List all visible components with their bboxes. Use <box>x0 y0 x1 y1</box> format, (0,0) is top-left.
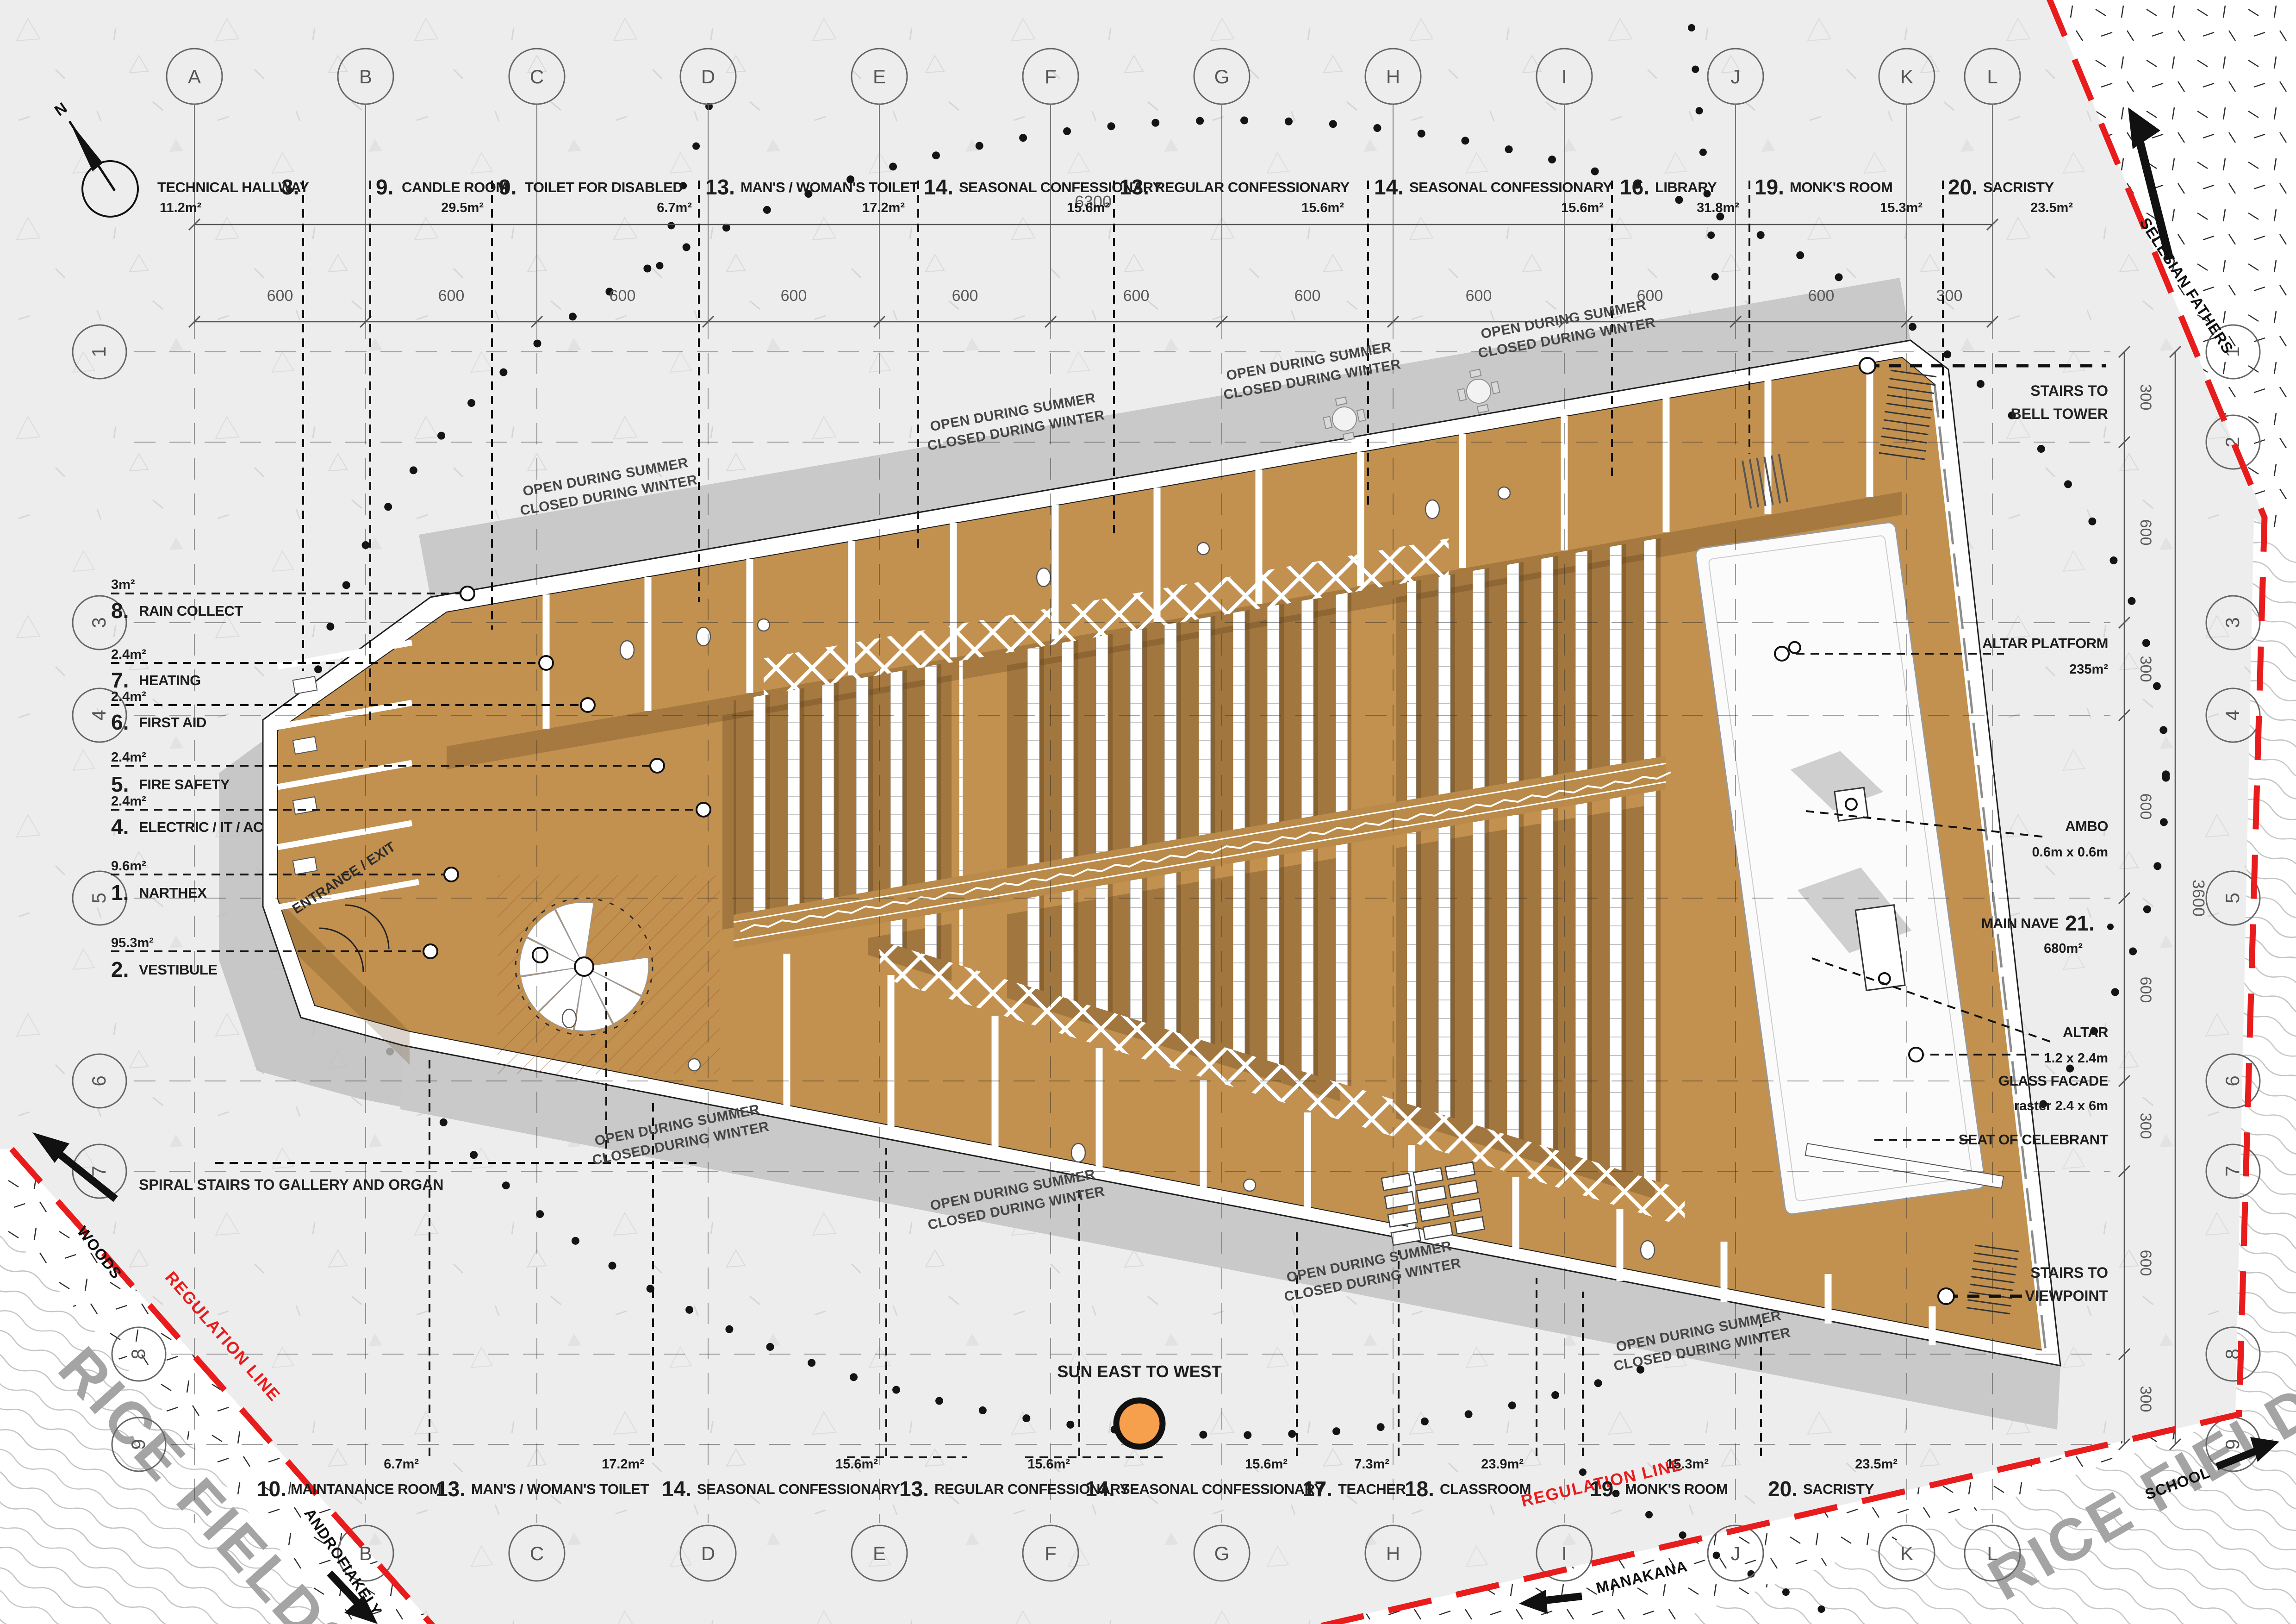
grid-col: C <box>530 66 544 87</box>
sun-icon <box>1116 1400 1163 1447</box>
svg-text:7.3m²: 7.3m² <box>1354 1457 1389 1472</box>
dim-seg: 600 <box>2137 793 2154 820</box>
main-nave-label: MAIN NAVE <box>1981 915 2059 931</box>
grid-col: F <box>1045 66 1057 87</box>
svg-text:18.: 18. <box>1405 1477 1434 1501</box>
grid-row: 4 <box>88 710 110 720</box>
main-nave-num: 21. <box>2065 911 2095 935</box>
grid-col: E <box>873 66 886 87</box>
dim-seg: 300 <box>2137 1113 2154 1139</box>
seat-of-celebrant-label: SEAT OF CELEBRANT <box>1959 1131 2109 1148</box>
spiral-stairs-note: SPIRAL STAIRS TO GALLERY AND ORGAN <box>139 1176 443 1193</box>
svg-text:15.3m²: 15.3m² <box>1880 200 1923 215</box>
glass-facade-size: raster 2.4 x 6m <box>2014 1099 2108 1113</box>
svg-text:FIRE SAFETY: FIRE SAFETY <box>139 776 230 793</box>
grid-row: 5 <box>2221 893 2243 903</box>
svg-text:15.6m²: 15.6m² <box>1067 200 1109 215</box>
svg-text:MONK'S ROOM: MONK'S ROOM <box>1625 1481 1728 1497</box>
svg-text:NARTHEX: NARTHEX <box>139 885 207 901</box>
dim-seg: 600 <box>1294 287 1321 305</box>
svg-text:31.8m²: 31.8m² <box>1697 200 1739 215</box>
viewpoint-label: STAIRS TO <box>2030 1264 2108 1281</box>
svg-text:2.4m²: 2.4m² <box>111 647 146 662</box>
plan-canvas: RICE FIELDS RICE FIELDS <box>0 0 2296 1624</box>
svg-text:6.: 6. <box>111 710 129 734</box>
svg-text:REGULAR CONFESSIONARY: REGULAR CONFESSIONARY <box>1155 179 1350 195</box>
svg-text:SEASONAL CONFESSIONARY: SEASONAL CONFESSIONARY <box>1120 1481 1324 1497</box>
svg-text:15.3m²: 15.3m² <box>1666 1457 1709 1472</box>
svg-text:14.: 14. <box>1085 1477 1115 1501</box>
ambo-size: 0.6m x 0.6m <box>2032 845 2108 860</box>
svg-text:RAIN COLLECT: RAIN COLLECT <box>139 603 243 619</box>
dim-seg: 600 <box>2137 977 2154 1003</box>
svg-text:1.: 1. <box>111 881 129 905</box>
svg-text:SEASONAL CONFESSIONARY: SEASONAL CONFESSIONARY <box>697 1481 900 1497</box>
svg-text:8.: 8. <box>111 599 129 623</box>
glass-facade-label: GLASS FACADE <box>1998 1073 2108 1089</box>
svg-text:4.: 4. <box>111 815 129 839</box>
grid-col: L <box>1987 1543 1997 1564</box>
svg-text:2.4m²: 2.4m² <box>111 794 146 809</box>
svg-text:13.: 13. <box>705 175 735 199</box>
svg-text:CANDLE ROOM: CANDLE ROOM <box>402 179 508 195</box>
svg-text:23.5m²: 23.5m² <box>1855 1457 1898 1472</box>
grid-col: F <box>1045 1543 1057 1564</box>
dim-seg: 600 <box>952 287 978 305</box>
grid-row: 6 <box>2221 1075 2243 1086</box>
grid-col: D <box>701 66 715 87</box>
svg-text:20.: 20. <box>1948 175 1978 199</box>
svg-text:2.: 2. <box>111 957 129 981</box>
grid-col: G <box>1214 66 1230 87</box>
dim-seg: 600 <box>438 287 465 305</box>
svg-text:MAN'S / WOMAN'S TOILET: MAN'S / WOMAN'S TOILET <box>471 1481 649 1497</box>
svg-text:11.2m²: 11.2m² <box>160 200 202 215</box>
svg-text:LIBRARY: LIBRARY <box>1655 179 1717 195</box>
grid-col: L <box>1987 66 1997 87</box>
grid-col: E <box>873 1543 886 1564</box>
svg-text:2.4m²: 2.4m² <box>111 750 146 765</box>
sun-label: SUN EAST TO WEST <box>1057 1362 1221 1381</box>
dim-seg: 600 <box>2137 1250 2154 1276</box>
svg-text:19.: 19. <box>1755 175 1784 199</box>
altar-platform-area: 235m² <box>2069 662 2108 677</box>
grid-col: J <box>1731 1543 1741 1564</box>
grid-col: H <box>1386 1543 1400 1564</box>
svg-text:10.: 10. <box>257 1477 286 1501</box>
svg-text:23.9m²: 23.9m² <box>1481 1457 1524 1472</box>
dim-seg: 300 <box>1936 287 1963 305</box>
svg-text:13.: 13. <box>899 1477 929 1501</box>
svg-text:9.: 9. <box>499 175 516 199</box>
grid-row: 9 <box>127 1439 149 1449</box>
svg-text:13.: 13. <box>1120 175 1149 199</box>
svg-text:SACRISTY: SACRISTY <box>1983 179 2054 195</box>
svg-text:9.6m²: 9.6m² <box>111 859 146 874</box>
svg-text:3.: 3. <box>281 175 299 199</box>
svg-text:SEASONAL CONFESSIONARY: SEASONAL CONFESSIONARY <box>1409 179 1612 195</box>
svg-text:MAINTANANCE ROOM: MAINTANANCE ROOM <box>291 1481 442 1497</box>
svg-text:HEATING: HEATING <box>139 672 201 688</box>
svg-text:MONK'S ROOM: MONK'S ROOM <box>1790 179 1892 195</box>
grid-row: 1 <box>88 346 110 357</box>
svg-text:17.: 17. <box>1303 1477 1332 1501</box>
svg-text:14.: 14. <box>1374 175 1404 199</box>
grid-row: 3 <box>2221 617 2243 628</box>
dim-seg: 300 <box>2137 1386 2154 1412</box>
grid-row: 9 <box>2221 1439 2243 1449</box>
dim-seg: 600 <box>1808 287 1835 305</box>
altar-size: 1.2 x 2.4m <box>2044 1051 2108 1066</box>
svg-text:6.7m²: 6.7m² <box>657 200 692 215</box>
svg-text:15.6m²: 15.6m² <box>1561 200 1604 215</box>
svg-text:CLASSROOM: CLASSROOM <box>1440 1481 1531 1497</box>
svg-text:MAN'S / WOMAN'S TOILET: MAN'S / WOMAN'S TOILET <box>740 179 918 195</box>
dim-right-total: 3600 <box>2189 880 2208 917</box>
svg-text:TOILET FOR DISABLED: TOILET FOR DISABLED <box>525 179 683 195</box>
svg-text:15.6m²: 15.6m² <box>1301 200 1344 215</box>
svg-text:13.: 13. <box>436 1477 466 1501</box>
ambo-label: AMBO <box>2065 818 2108 834</box>
grid-col: D <box>701 1543 715 1564</box>
svg-text:16.: 16. <box>1620 175 1649 199</box>
grid-col: G <box>1214 1543 1230 1564</box>
dim-seg: 300 <box>2137 384 2154 411</box>
svg-text:15.6m²: 15.6m² <box>1245 1457 1288 1472</box>
svg-text:14.: 14. <box>924 175 953 199</box>
svg-text:TEACHER: TEACHER <box>1338 1481 1406 1497</box>
dim-seg: 300 <box>2137 656 2154 682</box>
dim-seg: 600 <box>1466 287 1492 305</box>
grid-row: 4 <box>2221 710 2243 720</box>
svg-text:15.6m²: 15.6m² <box>1027 1457 1070 1472</box>
dim-seg: 600 <box>610 287 636 305</box>
grid-col: I <box>1562 1543 1567 1564</box>
grid-row: 8 <box>127 1349 149 1359</box>
dim-seg: 600 <box>2137 519 2154 546</box>
grid-col: B <box>359 66 372 87</box>
svg-text:3m²: 3m² <box>111 577 135 592</box>
bell-tower-label: BELL TOWER <box>2011 406 2108 422</box>
grid-col: K <box>1900 66 1913 87</box>
svg-text:SACRISTY: SACRISTY <box>1803 1481 1874 1497</box>
bell-tower-label: STAIRS TO <box>2030 382 2108 399</box>
dim-seg: 600 <box>267 287 293 305</box>
svg-text:5.: 5. <box>111 772 129 796</box>
dim-seg: 600 <box>781 287 807 305</box>
svg-text:VESTIBULE: VESTIBULE <box>139 962 217 978</box>
svg-text:9.: 9. <box>376 175 393 199</box>
svg-text:6.7m²: 6.7m² <box>384 1457 419 1472</box>
grid-row: 6 <box>88 1075 110 1086</box>
svg-text:15.6m²: 15.6m² <box>835 1457 878 1472</box>
grid-col: J <box>1731 66 1741 87</box>
floor-plan-sheet: RICE FIELDS RICE FIELDS <box>0 0 2296 1624</box>
svg-text:14.: 14. <box>662 1477 691 1501</box>
svg-text:19.: 19. <box>1590 1477 1619 1501</box>
grid-col: H <box>1386 66 1400 87</box>
grid-row: 7 <box>2221 1166 2243 1176</box>
grid-row: 3 <box>88 617 110 628</box>
svg-text:ELECTRIC / IT / AC: ELECTRIC / IT / AC <box>139 819 263 835</box>
grid-col: I <box>1562 66 1567 87</box>
svg-text:29.5m²: 29.5m² <box>441 200 484 215</box>
svg-text:95.3m²: 95.3m² <box>111 936 154 950</box>
svg-text:FIRST AID: FIRST AID <box>139 714 206 731</box>
svg-text:2.4m²: 2.4m² <box>111 689 146 704</box>
grid-col: A <box>188 66 201 87</box>
main-nave-area: 680m² <box>2044 941 2083 956</box>
svg-text:20.: 20. <box>1768 1477 1798 1501</box>
altar-label: ALTAR <box>2063 1024 2108 1040</box>
svg-text:17.2m²: 17.2m² <box>602 1457 644 1472</box>
grid-col: C <box>530 1543 544 1564</box>
grid-row: 5 <box>88 893 110 903</box>
altar-platform-label: ALTAR PLATFORM <box>1982 635 2108 651</box>
viewpoint-label: VIEWPOINT <box>2025 1287 2108 1304</box>
dim-seg: 600 <box>1123 287 1150 305</box>
grid-col: K <box>1900 1543 1913 1564</box>
spiral-stair <box>498 875 720 1074</box>
svg-text:23.5m²: 23.5m² <box>2030 200 2073 215</box>
svg-text:7.: 7. <box>111 668 129 692</box>
svg-text:17.2m²: 17.2m² <box>862 200 905 215</box>
